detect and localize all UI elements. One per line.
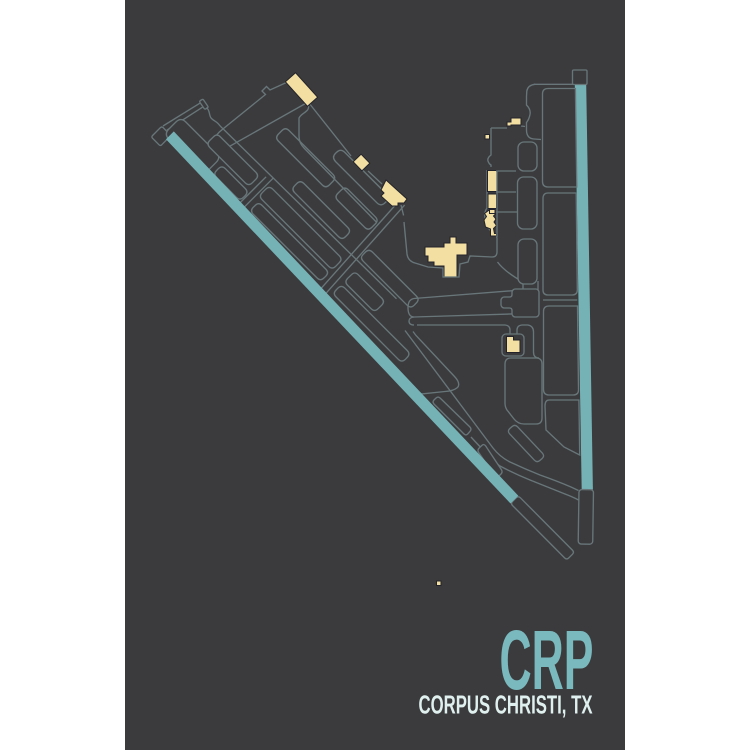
svg-text:CORPUS CHRISTI, TX: CORPUS CHRISTI, TX xyxy=(419,692,593,720)
